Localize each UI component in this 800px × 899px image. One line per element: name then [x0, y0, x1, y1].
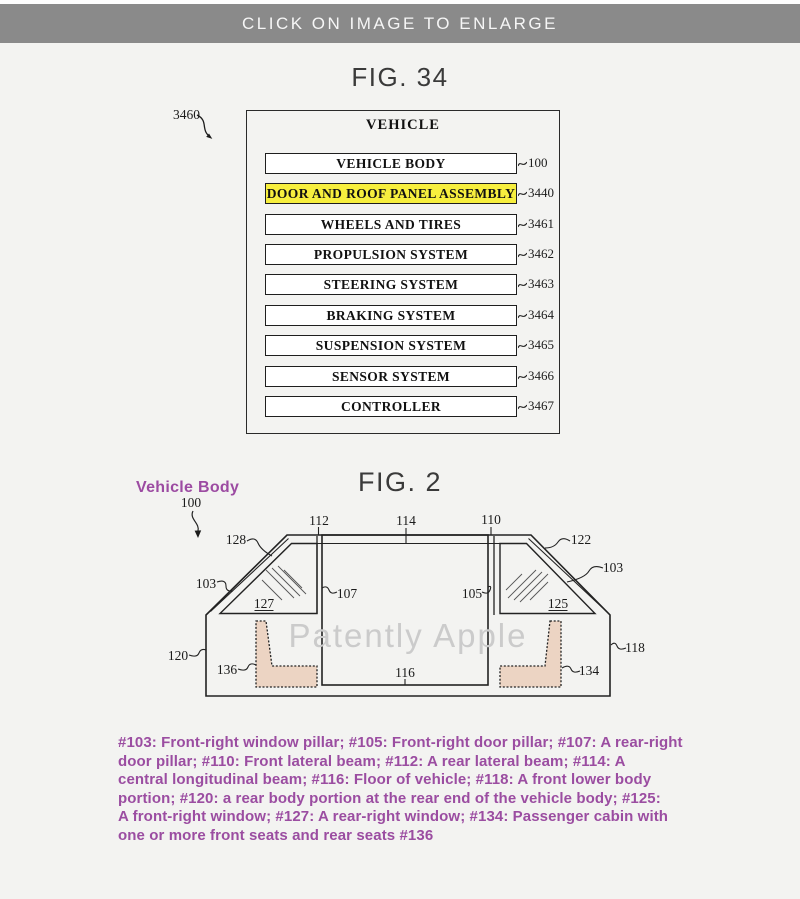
- glass-shine-right: [506, 570, 548, 602]
- fig34-ref-3467: 3467: [518, 398, 564, 414]
- ref-connector-icon: [518, 187, 527, 199]
- fig34-box-propulsion: PROPULSION SYSTEM: [265, 244, 517, 265]
- ref-label-116: 116: [395, 665, 415, 680]
- fig34-box-door-roof-panel-assembly: DOOR AND ROOF PANEL ASSEMBLY: [265, 183, 517, 204]
- caption-line: A front-right window; #127: A rear-right…: [118, 808, 708, 827]
- caption-line: #103: Front-right window pillar; #105: F…: [118, 734, 708, 753]
- ref-connector-icon: [518, 218, 527, 230]
- fig34-box-steering: STEERING SYSTEM: [265, 274, 517, 295]
- enlarge-banner: CLICK ON IMAGE TO ENLARGE: [0, 4, 800, 43]
- ref-label-127: 127: [254, 596, 275, 611]
- caption-line: central longitudinal beam; #116: Floor o…: [118, 771, 708, 790]
- fig34-box-controller: CONTROLLER: [265, 396, 517, 417]
- fig34-ref-arrow: [194, 111, 228, 145]
- fig34-ref-3461: 3461: [518, 216, 564, 232]
- fig34-ref-3466: 3466: [518, 368, 564, 384]
- ref-label-112: 112: [309, 513, 329, 528]
- ref-connector-icon: [518, 339, 527, 351]
- cabin-floor-rect: [322, 535, 488, 685]
- fig34-ref-3464: 3464: [518, 307, 564, 323]
- fig34-ref-3440: 3440: [518, 185, 564, 201]
- ref-connector-icon: [518, 309, 527, 321]
- fig34-container-label: VEHICLE: [247, 117, 559, 134]
- ref-connector-icon: [518, 278, 527, 290]
- fig34-ref-100: 100: [518, 155, 564, 171]
- fig34-box-sensor: SENSOR SYSTEM: [265, 366, 517, 387]
- ref-connector-icon: [518, 400, 527, 412]
- ref-label-103-right: 103: [603, 560, 624, 575]
- fig34-box-suspension: SUSPENSION SYSTEM: [265, 335, 517, 356]
- ref-label-110: 110: [481, 512, 501, 527]
- ref-label-114: 114: [396, 513, 416, 528]
- ref-label-100: 100: [181, 495, 202, 510]
- ref-label-107: 107: [337, 586, 358, 601]
- fig34-ref-3463: 3463: [518, 276, 564, 292]
- ref-label-125: 125: [548, 596, 569, 611]
- ref-label-134: 134: [579, 663, 600, 678]
- reference-caption: #103: Front-right window pillar; #105: F…: [118, 734, 708, 846]
- patently-apple-watermark: Patently Apple: [8, 617, 800, 655]
- ref-connector-icon: [518, 370, 527, 382]
- ref-label-136: 136: [217, 662, 238, 677]
- caption-line: portion; #120: a rear body portion at th…: [118, 790, 708, 809]
- patent-figure-image[interactable]: CLICK ON IMAGE TO ENLARGE FIG. 34 3460 V…: [0, 0, 800, 899]
- caption-line: one or more front seats and rear seats #…: [118, 827, 708, 846]
- fig34-box-wheels-tires: WHEELS AND TIRES: [265, 214, 517, 235]
- ref-label-128: 128: [226, 532, 247, 547]
- ref-label-122: 122: [571, 532, 591, 547]
- fig34-box-braking: BRAKING SYSTEM: [265, 305, 517, 326]
- ref-label-105: 105: [462, 586, 483, 601]
- fig34-title: FIG. 34: [0, 62, 800, 93]
- fig34-ref-3465: 3465: [518, 337, 564, 353]
- glass-shine-left: [262, 566, 306, 600]
- ref-connector-icon: [518, 157, 527, 169]
- fig34-vehicle-container: VEHICLE VEHICLE BODY DOOR AND ROOF PANEL…: [246, 110, 560, 434]
- ref-connector-icon: [518, 248, 527, 260]
- ref-label-103-left: 103: [196, 576, 217, 591]
- fig34-box-vehicle-body: VEHICLE BODY: [265, 153, 517, 174]
- fig2-drawing: 100 112 114 110 128 122 103 103 107 105 …: [0, 455, 800, 705]
- fig34-ref-3462: 3462: [518, 246, 564, 262]
- caption-line: door pillar; #110: Front lateral beam; #…: [118, 753, 708, 772]
